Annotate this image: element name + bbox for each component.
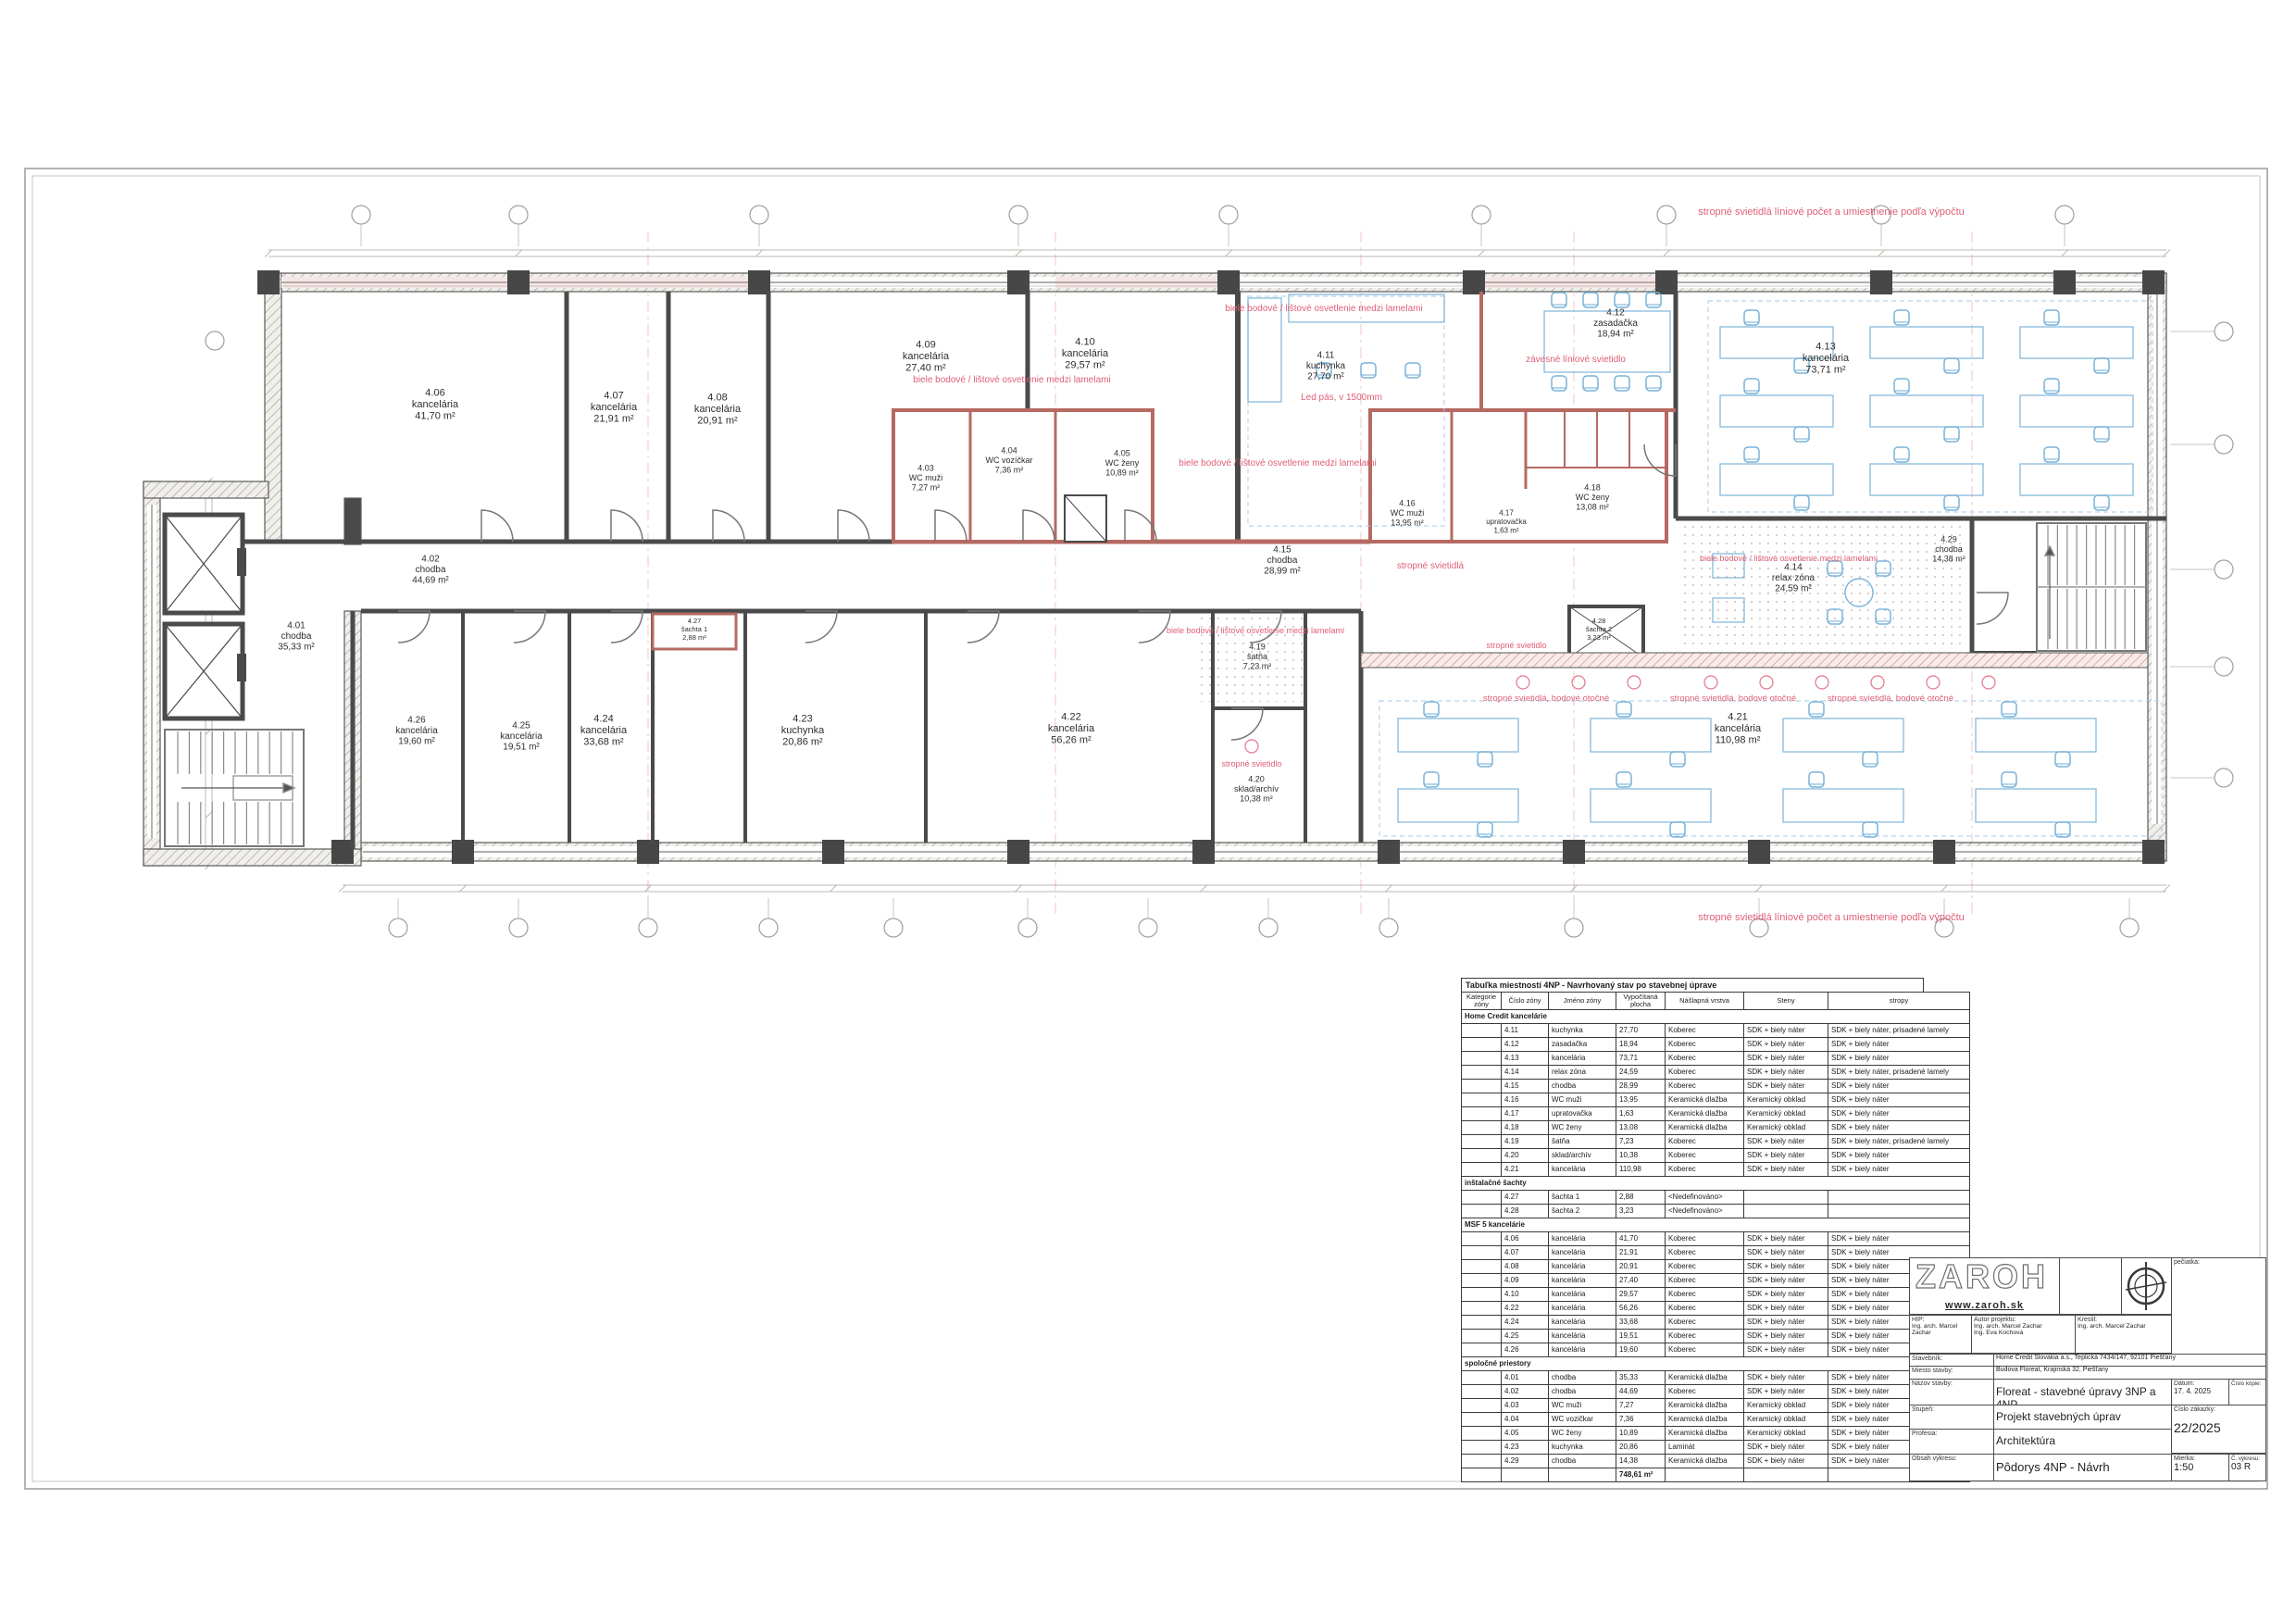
content-value: Pôdorys 4NP - Návrh [1994, 1455, 2171, 1474]
drawing-sheet: 4.01chodba35,33 m²4.02chodba44,69 m²4.03… [0, 0, 2296, 1624]
room-label: 4.01chodba35,33 m² [278, 621, 315, 653]
column-header: Kategorie zóny [1462, 993, 1502, 1010]
room-label: 4.24kancelária33,68 m² [580, 714, 628, 748]
room-label: 4.02chodba44,69 m² [412, 555, 449, 586]
drawing-no-cell: Č. výkresu: 03 R [2228, 1454, 2266, 1481]
date-label: Dátum: [2172, 1380, 2228, 1387]
room-label: 4.06kancelária41,70 m² [412, 388, 459, 422]
room-schedule-table: Kategorie zónyČíslo zónyJméno zónyVypočí… [1461, 992, 1970, 1482]
table-row: 4.24kancelária33,68KoberecSDK + biely ná… [1462, 1315, 1970, 1329]
table-row: 4.06kancelária41,70KoberecSDK + biely ná… [1462, 1231, 1970, 1245]
drafter-label: Kreslil: [2076, 1316, 2171, 1323]
website-link[interactable]: www.zaroh.sk [1910, 1300, 2059, 1311]
room-label: 4.20sklad/archív10,38 m² [1234, 775, 1279, 804]
stage-label-cell: Stupeň: [1909, 1405, 1994, 1430]
content-value-cell: Pôdorys 4NP - Návrh [1993, 1454, 2172, 1481]
project-value-cell: Floreat - stavebné úpravy 3NP a 4NP [1993, 1379, 2172, 1405]
site-label: Miesto stavby: [1910, 1367, 1993, 1374]
table-row: 4.11kuchynka27,70KoberecSDK + biely náte… [1462, 1023, 1970, 1037]
site-value-cell: Budova Floreat, Krajinská 32, Piešťany [1993, 1366, 2266, 1380]
table-row: 4.01chodba35,33Keramická dlažbaSDK + bie… [1462, 1370, 1970, 1384]
room-label: 4.08kancelária20,91 m² [694, 393, 742, 427]
client-label: Stavebník: [1910, 1355, 1993, 1362]
room-label: 4.26kancelária19,60 m² [395, 716, 438, 747]
table-row: 4.09kancelária27,40KoberecSDK + biely ná… [1462, 1273, 1970, 1287]
project-label: Názov stavby: [1910, 1380, 1993, 1387]
table-row: 4.16WC muži13,95Keramická dlažbaKeramick… [1462, 1093, 1970, 1106]
table-row: 4.13kancelária73,71KoberecSDK + biely ná… [1462, 1051, 1970, 1065]
north-compass-icon [2122, 1258, 2171, 1314]
date-cell: Dátum: 17. 4. 2025 [2171, 1379, 2229, 1405]
table-row: 4.18WC ženy13,08Keramická dlažbaKeramick… [1462, 1120, 1970, 1134]
lighting-annotation: stropné svietidlá, bodové otočné [1483, 693, 1609, 704]
logo-cell: ZAROH www.zaroh.sk [1909, 1257, 2060, 1315]
client-value: Home Credit Slovakia a.s., Teplická 7434… [1994, 1355, 2265, 1361]
order-no-label: Číslo zákazky: [2172, 1405, 2265, 1413]
table-row: 4.12zasadačka18,94KoberecSDK + biely nát… [1462, 1037, 1970, 1051]
profession-value-cell: Architektúra [1993, 1429, 2172, 1455]
stamp-label: pečiatka: [2172, 1258, 2265, 1266]
lighting-annotation: stropné svietidlá líniové počet a umiest… [1698, 206, 1965, 218]
profession-label-cell: Profesia: [1909, 1429, 1994, 1455]
table-row: 4.20sklad/archív10,38KoberecSDK + biely … [1462, 1148, 1970, 1162]
table-row: 4.28šachta 23,23<Nedefinováno> [1462, 1204, 1970, 1218]
column-header: stropy [1828, 993, 1970, 1010]
table-row: 4.03WC muži7,27Keramická dlažbaKeramický… [1462, 1398, 1970, 1412]
lighting-annotation: biele bodové / lištové osvetlenie medzi … [1225, 304, 1422, 314]
table-row: 4.02chodba44,69KoberecSDK + biely náterS… [1462, 1384, 1970, 1398]
table-row: 4.27šachta 12,88<Nedefinováno> [1462, 1190, 1970, 1204]
table-row: 4.07kancelária21,91KoberecSDK + biely ná… [1462, 1245, 1970, 1259]
site-value: Budova Floreat, Krajinská 32, Piešťany [1994, 1367, 2265, 1373]
lighting-annotation: stropné svietidlo [1221, 759, 1281, 768]
room-label: 4.12zasadačka18,94 m² [1593, 308, 1638, 340]
lighting-annotation: stropné svietidlá líniové počet a umiest… [1698, 912, 1965, 923]
compass-cell [2121, 1257, 2172, 1315]
room-schedule: Tabuľka miestností 4NP - Navrhovaný stav… [1461, 978, 1924, 1482]
author-cell: Autor projektu: Ing. arch. Marcel Zachar… [1971, 1315, 2076, 1354]
table-row: 4.19šatňa7,23KoberecSDK + biely náterSDK… [1462, 1134, 1970, 1148]
table-row: 4.26kancelária19,60KoberecSDK + biely ná… [1462, 1343, 1970, 1356]
table-row: 4.05WC ženy10,89Keramická dlažbaKeramick… [1462, 1426, 1970, 1440]
drafter-value: Ing. arch. Marcel Zachar [2076, 1323, 2171, 1330]
stage-value: Projekt stavebných úprav [1994, 1405, 2171, 1423]
pink-hatch-band [1361, 653, 2148, 668]
room-schedule-title: Tabuľka miestností 4NP - Navrhovaný stav… [1461, 978, 1924, 992]
table-row: 4.17upratovačka1,63Keramická dlažbaKeram… [1462, 1106, 1970, 1120]
copy-no-cell: Číslo kópie: [2228, 1379, 2266, 1405]
client-label-cell: Stavebník: [1909, 1354, 1994, 1367]
stage-value-cell: Projekt stavebných úprav [1993, 1405, 2172, 1430]
order-no-cell: Číslo zákazky: 22/2025 [2171, 1405, 2266, 1454]
column-header: Číslo zóny [1502, 993, 1549, 1010]
project-label-cell: Názov stavby: [1909, 1379, 1994, 1405]
table-row: 4.08kancelária20,91KoberecSDK + biely ná… [1462, 1259, 1970, 1273]
room-label: 4.09kancelária27,40 m² [903, 340, 950, 374]
lighting-annotation: závesné líniové svietidlo [1526, 355, 1626, 365]
hip-label: HIP: [1910, 1316, 1971, 1323]
empty-cell [2059, 1257, 2122, 1315]
room-label: 4.15chodba28,99 m² [1264, 545, 1301, 577]
author-value-1: Ing. arch. Marcel Zachar [1972, 1323, 2075, 1330]
scale-label: Mierka: [2172, 1455, 2228, 1462]
date-value: 17. 4. 2025 [2172, 1387, 2228, 1395]
table-row: 4.25kancelária19,51KoberecSDK + biely ná… [1462, 1329, 1970, 1343]
column-header: Jméno zóny [1549, 993, 1616, 1010]
lighting-annotation: biele bodové / lištové osvetlenie medzi … [1179, 458, 1376, 468]
profession-value: Architektúra [1994, 1430, 2171, 1447]
section-row: spoločné priestory [1462, 1356, 1970, 1370]
copy-no-label: Číslo kópie: [2229, 1380, 2265, 1387]
title-block: ZAROH www.zaroh.sk pečiatka: HIP: Ing. a… [1909, 1257, 2266, 1481]
scale-cell: Mierka: 1:50 [2171, 1454, 2229, 1481]
lighting-annotation: biele bodové / lištové osvetlenie medzi … [1700, 554, 1878, 563]
client-value-cell: Home Credit Slovakia a.s., Teplická 7434… [1993, 1354, 2266, 1367]
room-label: 4.10kancelária29,57 m² [1062, 337, 1109, 371]
lighting-annotation: Led pás, v 1500mm [1301, 393, 1382, 403]
profession-label: Profesia: [1910, 1430, 1993, 1437]
column-header: Nášlapná vrstva [1666, 993, 1744, 1010]
column-header: Steny [1744, 993, 1828, 1010]
room-label: 4.23kuchynka20,86 m² [781, 714, 825, 748]
site-label-cell: Miesto stavby: [1909, 1366, 1994, 1380]
drafter-cell: Kreslil: Ing. arch. Marcel Zachar [2075, 1315, 2172, 1354]
room-label: 4.11kuchynka27,70 m² [1306, 351, 1346, 382]
table-row: 4.21kancelária110,98KoberecSDK + biely n… [1462, 1162, 1970, 1176]
scale-value: 1:50 [2172, 1462, 2228, 1473]
new-partitions-pink [653, 292, 1676, 649]
room-label: 4.25kancelária19,51 m² [500, 721, 543, 753]
table-row: 4.04WC vozičkar7,36Keramická dlažbaKeram… [1462, 1412, 1970, 1426]
hip-cell: HIP: Ing. arch. Marcel Zachar [1909, 1315, 1972, 1354]
order-no-value: 22/2025 [2172, 1413, 2265, 1435]
lighting-annotation: biele bodové / lištové osvetlenie medzi … [913, 375, 1110, 385]
lighting-annotation: stropné svietidlá, bodové otočné [1828, 693, 1953, 704]
hip-value: Ing. arch. Marcel Zachar [1910, 1323, 1971, 1336]
table-row: 4.29chodba14,38Keramická dlažbaSDK + bie… [1462, 1454, 1970, 1468]
table-row: 4.10kancelária29,57KoberecSDK + biely ná… [1462, 1287, 1970, 1301]
lighting-annotation: stropné svietidlo [1486, 641, 1546, 650]
lighting-annotation: stropné svietidlá, bodové otočné [1670, 693, 1796, 704]
author-value-2: Ing. Eva Kochová [1972, 1330, 2075, 1336]
table-row: 4.22kancelária56,26KoberecSDK + biely ná… [1462, 1301, 1970, 1315]
table-header-row: Kategorie zónyČíslo zónyJméno zónyVypočí… [1462, 993, 1970, 1010]
zaroh-logo: ZAROH [1910, 1258, 2058, 1295]
author-label: Autor projektu: [1972, 1316, 2075, 1323]
section-row: Home Credit kancelárie [1462, 1009, 1970, 1023]
lighting-annotation: stropné svietidlá [1397, 561, 1465, 571]
svg-text:ZAROH: ZAROH [1915, 1258, 2048, 1295]
room-label: 4.21kancelária110,98 m² [1715, 712, 1762, 746]
section-row: inštalačné šachty [1462, 1176, 1970, 1190]
room-label: 4.13kancelária73,71 m² [1803, 342, 1850, 376]
drawing-no-value: 03 R [2229, 1462, 2265, 1472]
column-header: Vypočítaná plocha [1616, 993, 1666, 1010]
table-row: 4.14relax zóna24,59KoberecSDK + biely ná… [1462, 1065, 1970, 1079]
table-row: 4.15chodba28,99KoberecSDK + biely náterS… [1462, 1079, 1970, 1093]
section-row: MSF 5 kancelárie [1462, 1218, 1970, 1231]
content-label: Obsah výkresu: [1910, 1455, 1993, 1462]
total-row: 748,61 m² [1462, 1468, 1970, 1481]
stage-label: Stupeň: [1910, 1405, 1993, 1413]
drawing-no-label: Č. výkresu: [2229, 1455, 2265, 1462]
content-label-cell: Obsah výkresu: [1909, 1454, 1994, 1481]
room-label: 4.22kancelária56,26 m² [1048, 712, 1095, 746]
table-row: 4.23kuchynka20,86LaminátSDK + biely náte… [1462, 1440, 1970, 1454]
lighting-annotation: biele bodové / lištové osvetlenie medzi … [1167, 626, 1344, 635]
room-label: 4.07kancelária21,91 m² [591, 391, 638, 425]
